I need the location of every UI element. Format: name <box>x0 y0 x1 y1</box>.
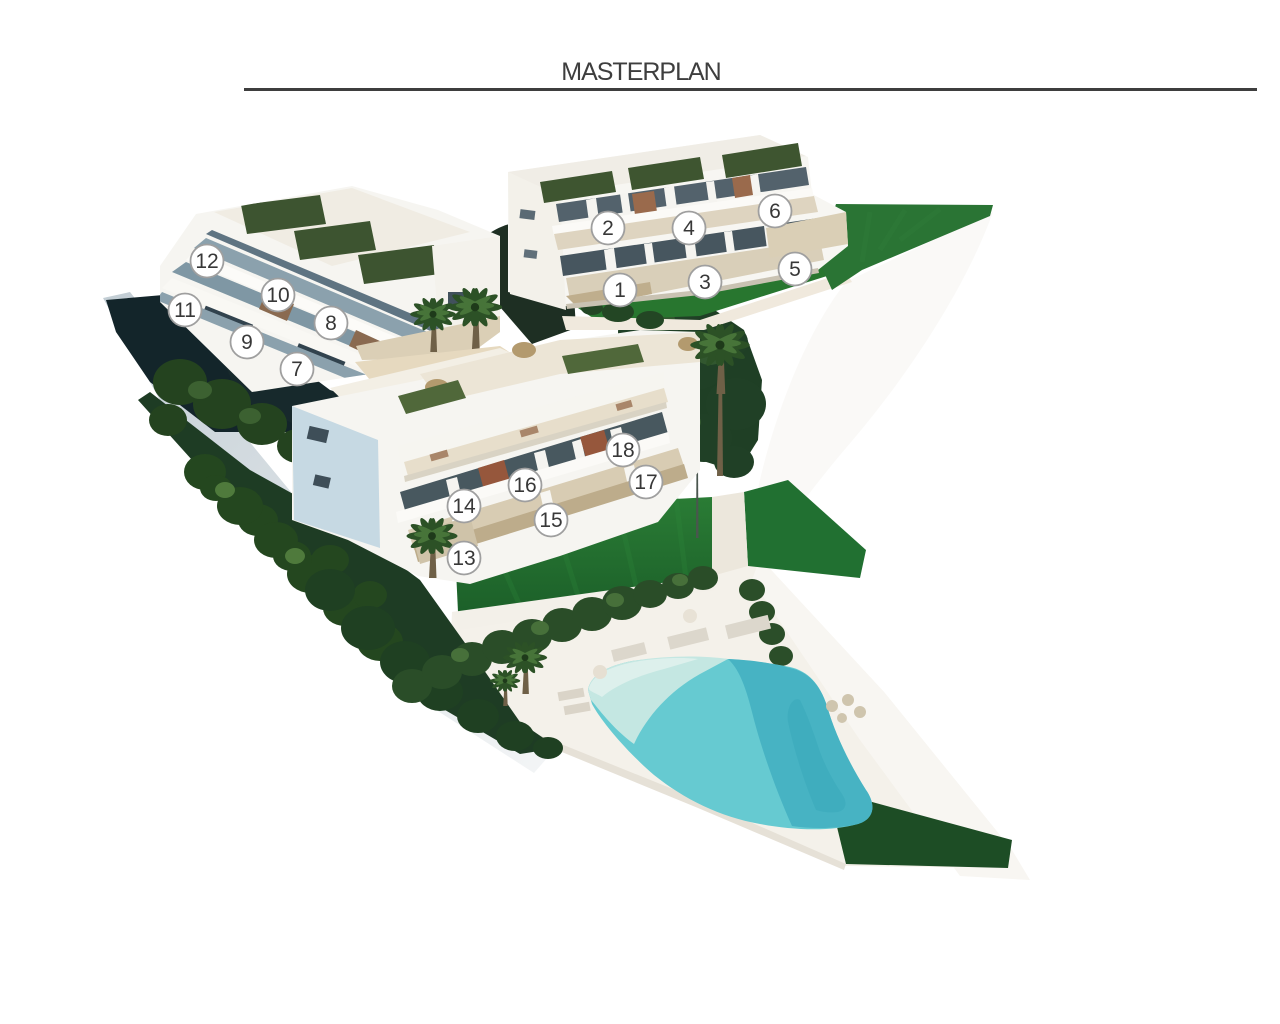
svg-text:18: 18 <box>611 439 634 462</box>
svg-text:14: 14 <box>452 495 476 518</box>
svg-text:7: 7 <box>291 358 303 381</box>
svg-text:17: 17 <box>634 471 657 494</box>
svg-text:8: 8 <box>325 312 337 335</box>
svg-text:10: 10 <box>266 284 289 307</box>
svg-text:4: 4 <box>683 217 695 240</box>
svg-text:2: 2 <box>602 217 614 240</box>
svg-text:1: 1 <box>614 279 626 302</box>
svg-text:9: 9 <box>241 331 253 354</box>
svg-text:3: 3 <box>699 271 711 294</box>
svg-text:6: 6 <box>769 200 781 223</box>
svg-text:5: 5 <box>789 258 801 281</box>
svg-text:13: 13 <box>452 547 475 570</box>
svg-text:MASTERPLAN: MASTERPLAN <box>561 58 720 86</box>
svg-text:15: 15 <box>539 509 562 532</box>
svg-text:16: 16 <box>513 474 536 497</box>
svg-text:11: 11 <box>174 299 196 322</box>
svg-text:12: 12 <box>195 250 218 273</box>
